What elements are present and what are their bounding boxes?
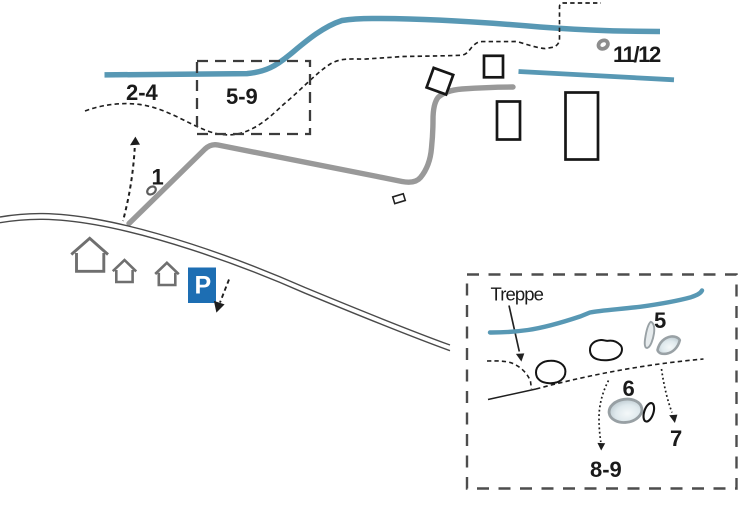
svg-text:Treppe: Treppe [491, 284, 544, 305]
svg-text:5: 5 [654, 308, 666, 333]
svg-text:8-9: 8-9 [590, 457, 622, 482]
svg-text:7: 7 [670, 426, 682, 451]
svg-text:5-9: 5-9 [226, 84, 258, 109]
svg-text:6: 6 [623, 376, 635, 401]
svg-text:P: P [195, 272, 212, 300]
svg-text:2-4: 2-4 [126, 80, 159, 105]
svg-text:11/12: 11/12 [613, 42, 661, 67]
